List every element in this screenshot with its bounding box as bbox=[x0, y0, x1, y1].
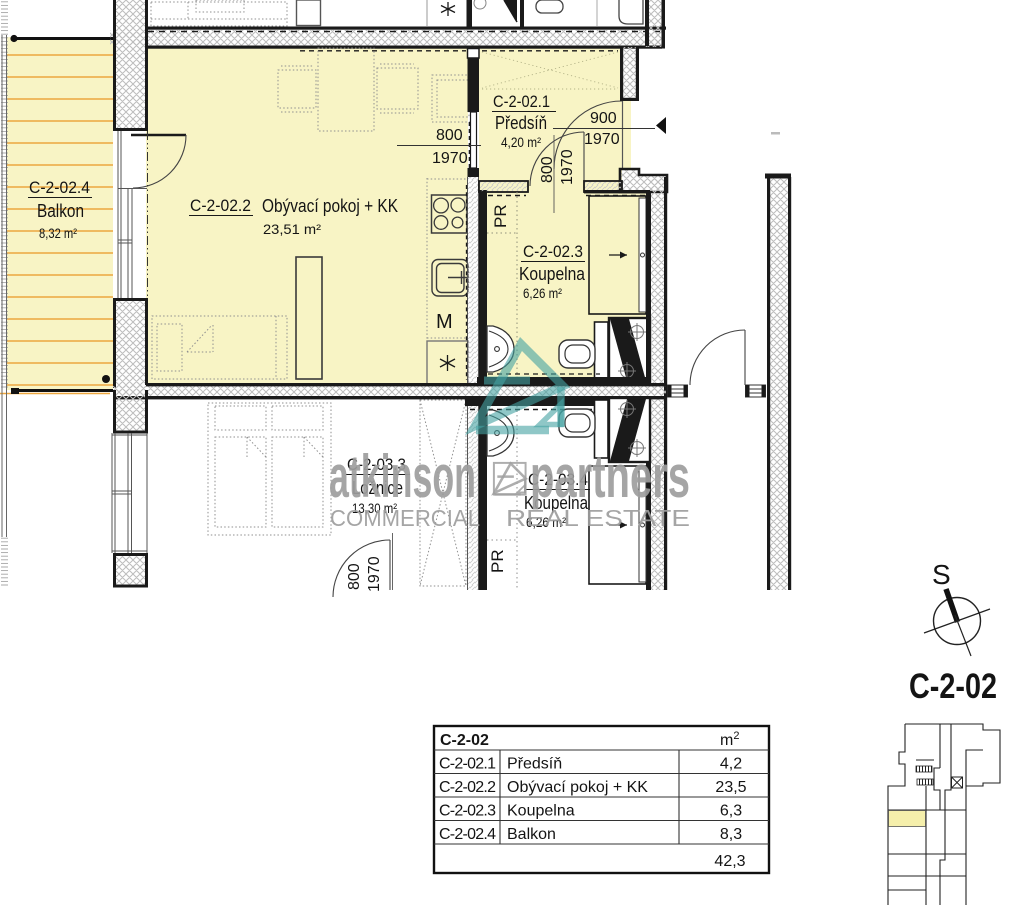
svg-text:4,20 m²: 4,20 m² bbox=[501, 134, 541, 150]
svg-text:1970: 1970 bbox=[432, 150, 468, 167]
svg-text:Obývací pokoj + KK: Obývací pokoj + KK bbox=[507, 779, 648, 796]
svg-text:S: S bbox=[932, 559, 951, 590]
svg-text:1970: 1970 bbox=[366, 556, 383, 592]
svg-text:8,32 m²: 8,32 m² bbox=[39, 225, 77, 241]
svg-text:Předsíň: Předsíň bbox=[507, 756, 562, 773]
svg-text:Balkon: Balkon bbox=[37, 201, 84, 221]
svg-text:23,51 m²: 23,51 m² bbox=[263, 221, 321, 237]
svg-text:REAL ESTATE: REAL ESTATE bbox=[506, 505, 690, 531]
svg-text:C-2-02.2: C-2-02.2 bbox=[190, 197, 251, 215]
svg-text:900: 900 bbox=[590, 110, 617, 127]
svg-text:C-2-02.1: C-2-02.1 bbox=[439, 756, 496, 773]
svg-text:C-2-02.4: C-2-02.4 bbox=[29, 179, 90, 197]
svg-text:C-2-02.3: C-2-02.3 bbox=[523, 243, 583, 261]
svg-text:6,3: 6,3 bbox=[720, 803, 742, 820]
svg-text:1970: 1970 bbox=[559, 149, 576, 185]
svg-text:C-2-02: C-2-02 bbox=[440, 732, 489, 749]
svg-text:PR: PR bbox=[488, 549, 507, 573]
svg-text:6,26 m²: 6,26 m² bbox=[523, 285, 562, 301]
svg-text:C-2-02.1: C-2-02.1 bbox=[493, 93, 550, 111]
svg-text:800: 800 bbox=[539, 156, 556, 183]
svg-text:PR: PR bbox=[491, 204, 510, 228]
svg-text:1970: 1970 bbox=[584, 131, 620, 148]
svg-text:800: 800 bbox=[436, 127, 463, 144]
svg-text:Koupelna: Koupelna bbox=[519, 264, 586, 284]
svg-text:C-2-02: C-2-02 bbox=[909, 667, 997, 706]
svg-text:8,3: 8,3 bbox=[720, 826, 742, 843]
svg-text:Obývací pokoj + KK: Obývací pokoj + KK bbox=[262, 196, 398, 216]
svg-text:C-2-02.2: C-2-02.2 bbox=[439, 779, 496, 796]
svg-text:23,5: 23,5 bbox=[715, 779, 746, 796]
svg-text:800: 800 bbox=[346, 563, 363, 590]
svg-text:C-2-02.3: C-2-02.3 bbox=[439, 803, 496, 820]
svg-text:partners: partners bbox=[530, 443, 690, 510]
svg-text:C-2-02.4: C-2-02.4 bbox=[439, 826, 496, 843]
svg-text:COMMERCIAL: COMMERCIAL bbox=[330, 505, 480, 531]
svg-text:4,2: 4,2 bbox=[720, 756, 742, 773]
svg-text:Předsíň: Předsíň bbox=[495, 113, 547, 133]
svg-text:atkinson: atkinson bbox=[329, 443, 476, 510]
svg-text:Balkon: Balkon bbox=[507, 826, 556, 843]
svg-text:Koupelna: Koupelna bbox=[507, 803, 575, 820]
svg-text:M: M bbox=[436, 311, 453, 333]
svg-text:42,3: 42,3 bbox=[714, 853, 745, 870]
